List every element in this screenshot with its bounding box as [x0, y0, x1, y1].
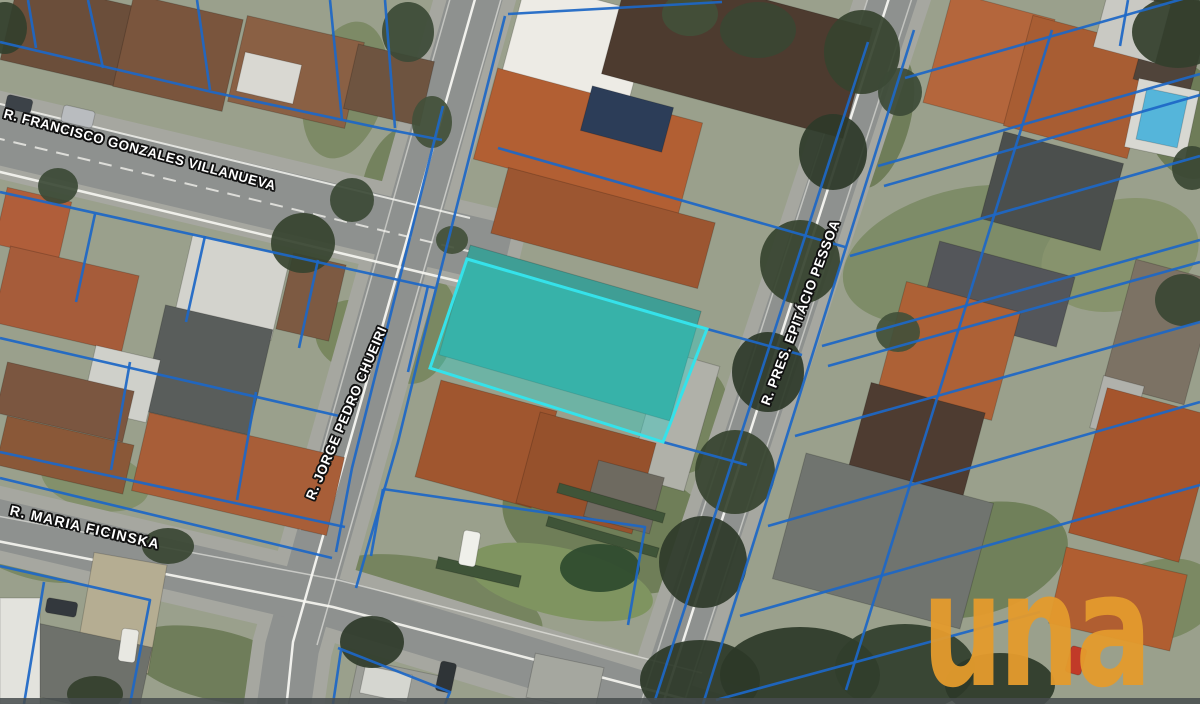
tree-canopy — [38, 168, 78, 204]
tree-canopy — [330, 178, 374, 222]
map-viewport[interactable]: R. FRANCISCO GONZALES VILLANUEVA R. JORG… — [0, 0, 1200, 704]
tree-canopy — [695, 430, 775, 514]
una-watermark-logo: una — [922, 552, 1148, 704]
bottom-edge-strip — [0, 698, 1200, 704]
tree-canopy — [560, 544, 640, 592]
tree-canopy — [720, 2, 796, 58]
tree-canopy — [412, 96, 452, 148]
tree-canopy — [659, 516, 747, 608]
